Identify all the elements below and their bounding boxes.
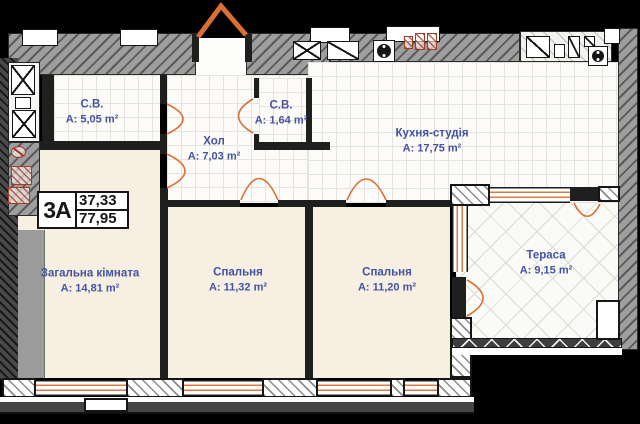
unit-areas: 37,33 77,95	[75, 193, 127, 227]
wall	[160, 188, 168, 378]
room-area: A: 11,20 m²	[358, 280, 416, 294]
duct-column	[18, 230, 45, 378]
room-name: Спальня	[209, 265, 267, 280]
window	[22, 29, 58, 46]
facade-step	[84, 398, 128, 412]
wall	[278, 200, 346, 207]
entrance-door-mark	[198, 6, 246, 37]
room-name: Загальна кімната	[41, 266, 140, 281]
wall-pier	[598, 186, 620, 202]
wall	[160, 75, 167, 104]
ventilation-fan-icon	[373, 40, 395, 62]
window	[318, 380, 390, 396]
window	[405, 380, 437, 396]
floor-plan: С.В. A: 5,05 m² Хол A: 7,03 m² С.В. A: 1…	[0, 0, 640, 424]
room-area: A: 11,32 m²	[209, 280, 267, 294]
room-name: Кухня-студія	[395, 126, 468, 141]
cabinet-icon	[554, 44, 565, 58]
room-name: Тераса	[520, 248, 573, 263]
unit-info-box: 3А 37,33 77,95	[37, 191, 129, 229]
column	[604, 28, 620, 44]
wall	[254, 142, 330, 150]
room-name: С.В.	[255, 98, 308, 113]
shaft-icon	[11, 65, 35, 95]
window	[120, 29, 158, 46]
room-name: Спальня	[358, 265, 416, 280]
room-label-hall: Хол A: 7,03 m²	[188, 134, 241, 163]
wall	[160, 134, 167, 154]
window	[184, 380, 262, 396]
cabinet-icon	[526, 36, 550, 58]
wall-pier	[437, 378, 472, 398]
window	[452, 206, 468, 272]
room-label-bathroom-2: С.В. A: 1,64 m²	[255, 98, 308, 127]
cabinet-icon	[327, 41, 359, 60]
shaft-icon	[293, 41, 321, 60]
riser-icon	[427, 33, 437, 50]
room-name: С.В.	[66, 97, 119, 112]
riser-icon	[11, 146, 26, 158]
room-area: A: 5,05 m²	[66, 112, 119, 126]
room-area: A: 17,75 m²	[395, 141, 468, 155]
wall	[386, 200, 452, 207]
wall-right	[618, 28, 638, 350]
wall	[42, 75, 54, 141]
room-name: Хол	[188, 134, 241, 149]
room-label-terrace: Тераса A: 9,15 m²	[520, 248, 573, 277]
window	[490, 187, 570, 203]
shaft-icon	[12, 110, 36, 138]
terrace-edge	[452, 348, 622, 355]
room-label-bathroom-1: С.В. A: 5,05 m²	[66, 97, 119, 126]
riser-icon	[8, 187, 30, 204]
ventilation-fan-icon	[588, 46, 608, 66]
room-label-living-room: Загальна кімната A: 14,81 m²	[41, 266, 140, 295]
wall	[254, 134, 259, 142]
wall-pier	[126, 378, 184, 398]
entrance-floor	[196, 38, 246, 75]
door-leaf	[570, 187, 598, 201]
wall-pier	[262, 378, 318, 398]
wall	[305, 207, 313, 378]
unit-code: 3А	[39, 193, 75, 227]
unit-total-area: 77,95	[77, 211, 127, 227]
unit-living-area: 37,33	[77, 193, 127, 211]
room-area: A: 14,81 m²	[41, 281, 140, 295]
wall-pier	[2, 378, 36, 398]
riser-icon	[11, 166, 32, 185]
door-leaf	[452, 277, 466, 317]
wall	[254, 78, 259, 98]
room-label-bedroom-2: Спальня A: 11,20 m²	[358, 265, 416, 294]
riser-icon	[404, 36, 413, 49]
room-area: A: 1,64 m²	[255, 113, 308, 127]
room-area: A: 7,03 m²	[188, 149, 241, 163]
wall-pier	[390, 378, 405, 398]
balcony-slab	[0, 402, 474, 414]
wall	[160, 200, 240, 207]
entrance-jamb	[245, 34, 252, 62]
window	[36, 380, 126, 396]
room-label-kitchen: Кухня-студія A: 17,75 m²	[395, 126, 468, 155]
cabinet-icon	[568, 36, 580, 58]
riser-icon	[415, 33, 425, 50]
wall-pier	[450, 184, 490, 206]
room-area: A: 9,15 m²	[520, 263, 573, 277]
shaft-icon	[15, 97, 31, 109]
entrance-jamb	[192, 34, 199, 62]
room-label-bedroom-1: Спальня A: 11,32 m²	[209, 265, 267, 294]
terrace-exterior-door	[596, 300, 620, 340]
